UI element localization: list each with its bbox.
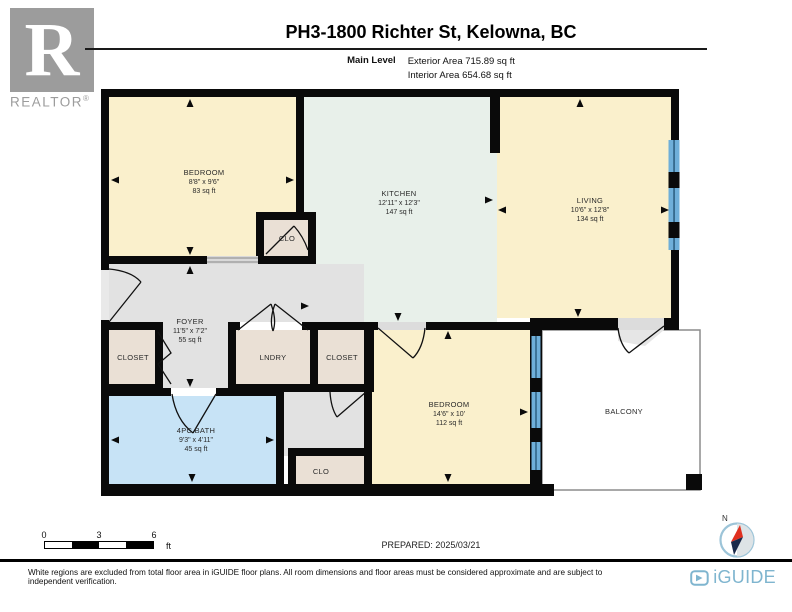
room-label-foyer: FOYER 11'5" x 7'2" 55 sq ft — [173, 317, 207, 345]
room-dims: 11'5" x 7'2" — [173, 327, 207, 336]
room-label-laundry: LNDRY — [260, 353, 287, 363]
room-name: BEDROOM — [429, 400, 470, 410]
foyer-floor — [109, 264, 364, 322]
balcony-door-gap — [618, 318, 664, 330]
room-label-balcony: BALCONY — [605, 407, 643, 417]
room-label-bedroom2: BEDROOM 14'6" x 10' 112 sq ft — [429, 400, 470, 428]
clo-bottom-floor — [296, 456, 364, 484]
compass: N — [721, 514, 754, 557]
room-dims: 12'11" x 12'3" — [378, 199, 420, 208]
room-name: CLO — [279, 234, 295, 244]
hall-floor — [284, 392, 364, 456]
bedroom2-door-gap — [378, 322, 426, 330]
room-area: 83 sq ft — [184, 187, 225, 196]
room-label-closet-left: CLOSET — [117, 353, 149, 363]
room-label-bedroom1: BEDROOM 8'8" x 9'6" 83 sq ft — [184, 168, 225, 196]
room-name: CLO — [313, 467, 329, 477]
room-name: CLOSET — [326, 353, 358, 363]
iguide-logo: iGUIDE — [690, 567, 776, 588]
room-dims: 9'3" x 4'11" — [177, 436, 216, 445]
scale-tick-0: 0 — [41, 530, 46, 540]
room-dims: 14'6" x 10' — [429, 410, 470, 419]
prepared-date: PREPARED: 2025/03/21 — [100, 540, 762, 550]
floorplan-page: R REALTOR® PH3-1800 Richter St, Kelowna,… — [0, 0, 792, 612]
room-label-clo-bottom: CLO — [313, 467, 329, 477]
room-name: BALCONY — [605, 407, 643, 417]
floor-plan: N — [0, 0, 792, 612]
scale-tick-6: 6 — [151, 530, 156, 540]
disclaimer-text: White regions are excluded from total fl… — [28, 568, 628, 586]
room-dims: 8'8" x 9'6" — [184, 178, 225, 187]
room-name: BEDROOM — [184, 168, 225, 178]
room-dims: 10'6" x 12'8" — [571, 206, 609, 215]
room-area: 147 sq ft — [378, 208, 420, 217]
iguide-wordmark: iGUIDE — [713, 567, 776, 588]
room-name: LNDRY — [260, 353, 287, 363]
room-name: 4PC BATH — [177, 426, 216, 436]
room-label-living: LIVING 10'6" x 12'8" 134 sq ft — [571, 196, 609, 224]
room-label-closet-right: CLOSET — [326, 353, 358, 363]
scale-tick-3: 3 — [96, 530, 101, 540]
room-name: LIVING — [571, 196, 609, 206]
room-area: 112 sq ft — [429, 419, 470, 428]
sliding-door — [207, 256, 258, 264]
compass-north-label: N — [722, 514, 728, 523]
iguide-camera-icon — [690, 570, 709, 586]
footer-divider — [0, 559, 792, 562]
room-area: 45 sq ft — [177, 445, 216, 454]
entry-gap — [101, 270, 109, 320]
room-label-clo-top: CLO — [279, 234, 295, 244]
room-area: 55 sq ft — [173, 336, 207, 345]
room-area: 134 sq ft — [571, 215, 609, 224]
room-label-bath: 4PC BATH 9'3" x 4'11" 45 sq ft — [177, 426, 216, 454]
room-name: KITCHEN — [378, 189, 420, 199]
room-label-kitchen: KITCHEN 12'11" x 12'3" 147 sq ft — [378, 189, 420, 217]
balcony-post — [686, 474, 702, 490]
room-name: FOYER — [173, 317, 207, 327]
room-name: CLOSET — [117, 353, 149, 363]
